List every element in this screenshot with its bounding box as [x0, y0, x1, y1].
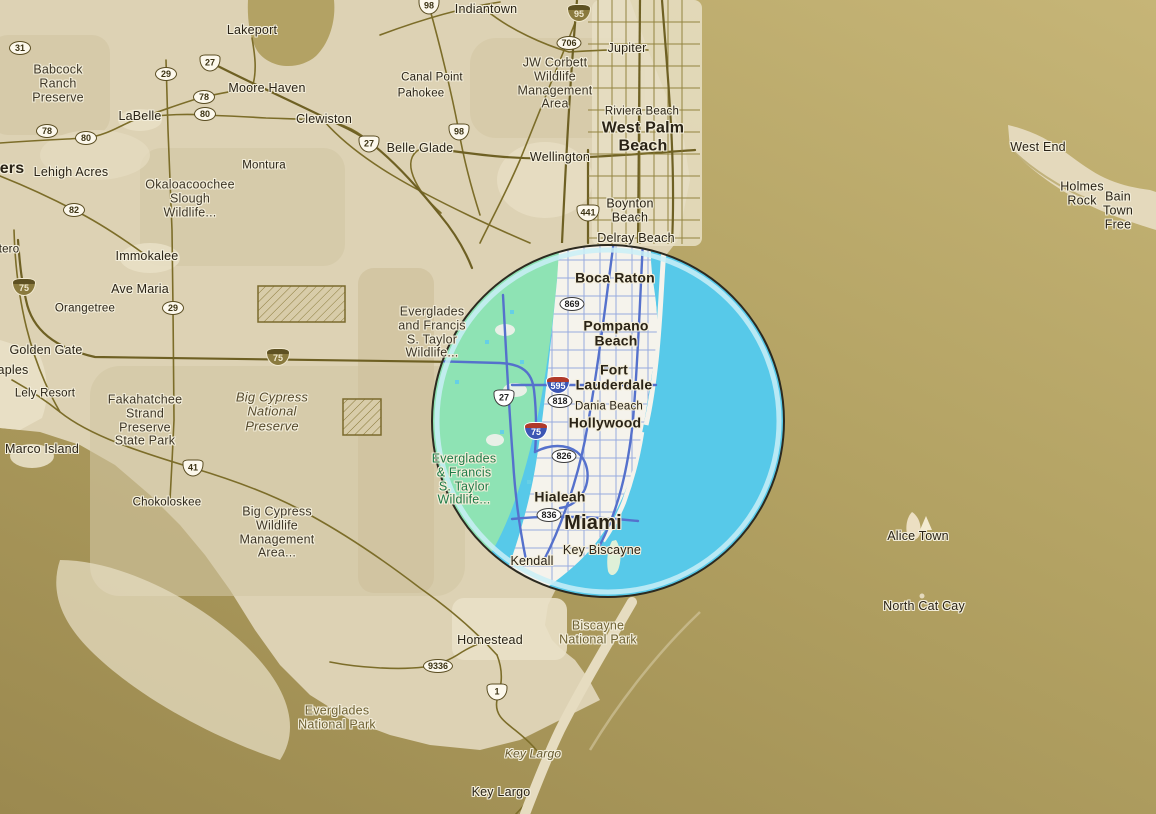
place-label: Big Cypress National Preserve [236, 391, 308, 434]
place-label: Indiantown [455, 3, 517, 17]
place-label: Clewiston [296, 113, 352, 127]
place-label: tero [0, 244, 19, 257]
route-shield: 818 [547, 394, 572, 408]
place-label: Hialeah [534, 489, 585, 504]
route-shield: 98 [449, 124, 470, 141]
place-label: Lely Resort [15, 388, 75, 401]
route-shield: 75 [524, 422, 548, 440]
place-label: Delray Beach [597, 232, 674, 246]
place-label: aples [0, 364, 28, 378]
route-shield: 31 [9, 41, 31, 55]
place-label: North Cat Cay [883, 600, 965, 614]
place-label: Key Biscayne [563, 544, 641, 558]
route-shield: 98 [419, 0, 440, 15]
place-label: Pompano Beach [583, 319, 648, 350]
place-label: West End [1010, 141, 1066, 155]
route-shield: 29 [155, 67, 177, 81]
place-label: Big Cypress Wildlife Management Area... [240, 506, 315, 561]
place-label: Montura [242, 160, 286, 173]
place-label: Biscayne National Park [559, 619, 637, 647]
place-label: Everglades & Francis S. Taylor Wildlife.… [432, 453, 497, 508]
place-label: Fakahatchee Strand Preserve State Park [108, 394, 182, 449]
place-label: Babcock Ranch Preserve [32, 63, 84, 104]
place-label: Miami [564, 512, 622, 534]
route-shield: 75 [12, 278, 36, 296]
route-shield: 826 [551, 449, 576, 463]
route-shield: 41 [183, 460, 204, 477]
place-label: Orangetree [55, 303, 115, 316]
place-label: Jupiter [608, 42, 647, 56]
place-label: Kendall [510, 555, 553, 569]
place-label: Lehigh Acres [34, 166, 109, 180]
place-label: West Palm Beach [602, 119, 684, 154]
place-label: Okaloacoochee Slough Wildlife... [145, 178, 234, 219]
place-label: ers [0, 160, 24, 178]
place-label: Boca Raton [575, 270, 655, 285]
place-label: Golden Gate [9, 344, 82, 358]
route-shield: 27 [200, 55, 221, 72]
place-label: Dania Beach [575, 401, 643, 414]
route-shield: 869 [559, 297, 584, 311]
route-shield: 27 [494, 390, 515, 407]
route-shield: 595 [546, 376, 570, 394]
place-label: Key Largo [472, 786, 531, 800]
route-shield: 78 [36, 124, 58, 138]
place-label: Everglades and Francis S. Taylor Wildlif… [398, 306, 466, 361]
place-label: Riviera Beach [605, 106, 679, 119]
place-label: Wellington [530, 151, 590, 165]
route-shield: 27 [359, 136, 380, 153]
place-label: Lakeport [227, 24, 277, 38]
place-label: Holmes Rock [1045, 180, 1119, 208]
route-shield: 1 [487, 684, 508, 701]
place-label: Pahokee [398, 88, 445, 101]
route-shield: 78 [193, 90, 215, 104]
place-label: Alice Town [887, 530, 949, 544]
place-label: Immokalee [116, 250, 179, 264]
route-shield: 441 [576, 205, 599, 222]
route-shield: 82 [63, 203, 85, 217]
route-shield: 9336 [423, 659, 453, 673]
place-label: Ave Maria [111, 283, 169, 297]
place-label: Hollywood [569, 415, 642, 430]
place-label: Chokoloskee [133, 497, 202, 510]
route-shield: 75 [266, 348, 290, 366]
route-shield: 29 [162, 301, 184, 315]
place-label: Everglades National Park [298, 704, 376, 732]
place-label: JW Corbett Wildlife Management Area [518, 57, 593, 112]
place-label: Fort Lauderdale [576, 363, 653, 394]
place-label: Canal Point [401, 72, 463, 85]
map-canvas[interactable]: LakeportBabcock Ranch PreserveMoore Have… [0, 0, 1156, 814]
route-shield: 706 [556, 36, 581, 50]
route-shield: 95 [567, 4, 591, 22]
place-label: LaBelle [118, 110, 161, 124]
route-shield: 80 [194, 107, 216, 121]
place-label: Boynton Beach [606, 197, 653, 225]
place-label: Moore Haven [228, 82, 305, 96]
route-shield: 80 [75, 131, 97, 145]
place-label: Marco Island [5, 443, 79, 457]
route-shield: 836 [536, 508, 561, 522]
place-label: Homestead [457, 634, 523, 648]
map-labels-layer: LakeportBabcock Ranch PreserveMoore Have… [0, 0, 1156, 814]
place-label: Bain Town Free [1099, 190, 1137, 231]
place-label: Key Largo [505, 747, 562, 760]
place-label: Belle Glade [387, 142, 454, 156]
